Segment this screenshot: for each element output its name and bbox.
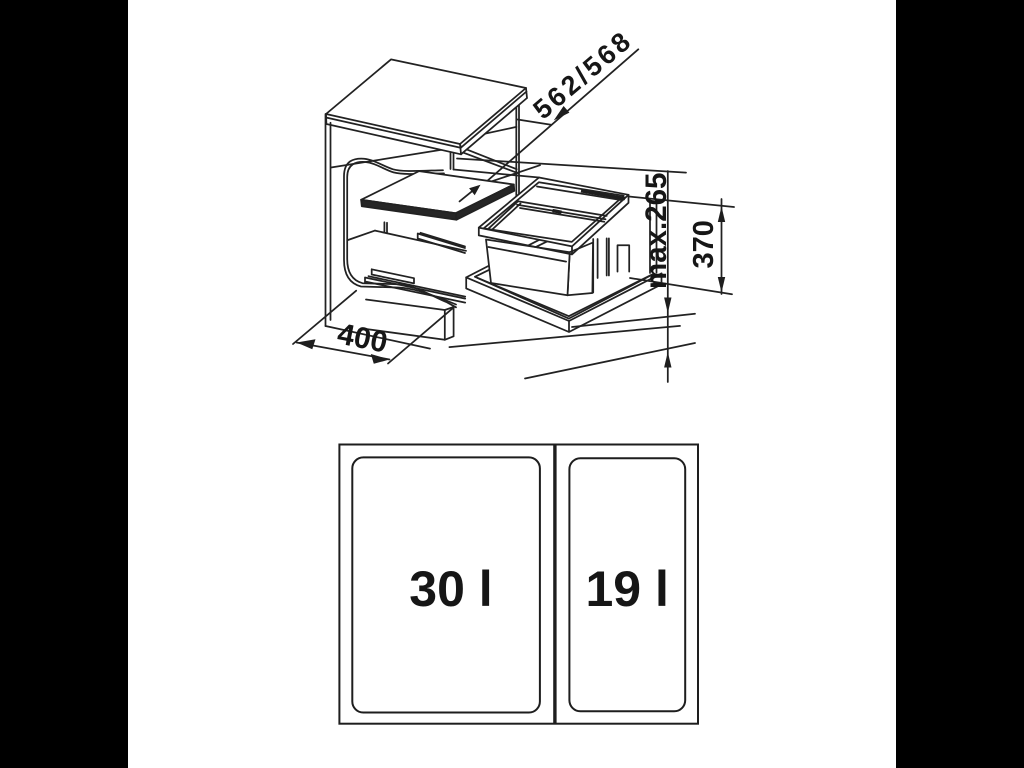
svg-text:370: 370	[688, 220, 720, 268]
svg-text:30 l: 30 l	[409, 561, 492, 617]
svg-text:19 l: 19 l	[585, 561, 668, 617]
svg-text:max.265: max.265	[640, 173, 673, 289]
